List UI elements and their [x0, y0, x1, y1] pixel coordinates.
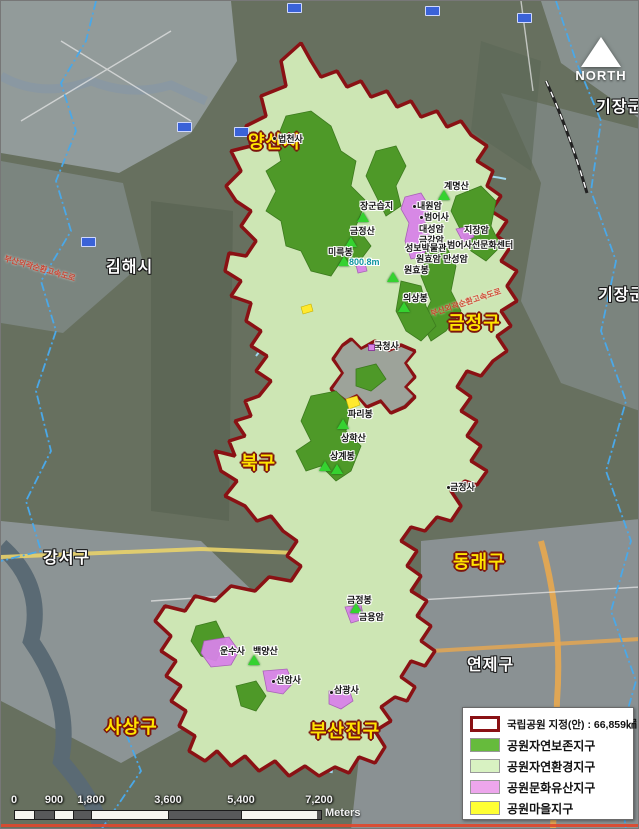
place-label-beomeosa-seon-culture-center: 범어사선문화센터: [447, 238, 513, 251]
environment-zone-swatch: [470, 759, 500, 773]
legend-boundary-label: 국립공원 지정(안) : 66,859㎢: [507, 717, 636, 732]
elevation-label: 800.8m: [349, 257, 380, 267]
basemap-canvas: [1, 1, 639, 829]
district-label-gijang-1: 기장군: [596, 93, 639, 117]
legend-row-boundary: 국립공원 지정(안) : 66,859㎢: [470, 714, 626, 734]
scale-bar: 0 900 1,800 3,600 5,400 7,200 Meters: [7, 793, 377, 825]
village-zone-swatch: [470, 801, 500, 815]
peak-triangle-icon: [398, 302, 410, 312]
place-label-seonamsa: 선암사: [276, 673, 301, 686]
scale-tick-900: 900: [45, 794, 63, 806]
north-label: NORTH: [573, 68, 629, 83]
temple-dot-icon: [272, 680, 275, 683]
scale-segment: [169, 811, 242, 819]
place-label-unsusa: 운수사: [220, 644, 245, 657]
temple-dot-icon: [447, 486, 450, 489]
district-label-busanjin: 부산진구: [310, 717, 380, 743]
district-label-bukgu: 북구: [241, 449, 276, 475]
place-label-wonhyobong: 원효봉: [404, 263, 429, 276]
scale-segment: [74, 811, 92, 819]
place-label-manseongam: 만성암: [443, 252, 468, 265]
district-label-yeonje: 연제구: [467, 651, 514, 675]
scale-tick-0: 0: [11, 794, 17, 806]
map-marker-box: [287, 3, 302, 13]
scale-tick-5400: 5,400: [227, 794, 255, 806]
place-label-sanghaksan: 상학산: [341, 431, 366, 444]
scale-unit-label: Meters: [325, 807, 360, 819]
scale-bar-segments: [14, 810, 322, 820]
legend-row-preservation: 공원자연보존지구: [470, 735, 626, 755]
map-marker-box: [425, 6, 440, 16]
map-marker-box: [177, 122, 192, 132]
map-marker-box: [234, 127, 249, 137]
park-designation-map: 양산시 김해시 기장군 기장군 금정구 북구 강서구 동래구 연제구 사상구 부…: [0, 0, 639, 829]
district-label-gangseo: 강서구: [43, 544, 90, 568]
district-label-geumjeong: 금정구: [448, 309, 501, 335]
place-label-samgwangsa: 삼광사: [334, 683, 359, 696]
scale-segment: [55, 811, 74, 819]
peak-triangle-icon: [337, 419, 349, 429]
scale-segment: [35, 811, 55, 819]
legend-row-village: 공원마을지구: [470, 798, 626, 818]
north-arrow-icon: [581, 37, 621, 67]
legend: 국립공원 지정(안) : 66,859㎢ 공원자연보존지구 공원자연환경지구 공…: [462, 707, 634, 820]
place-label-jijangam: 지장암: [464, 223, 489, 236]
map-marker-box: [81, 237, 96, 247]
temple-dot-icon: [330, 691, 333, 694]
legend-row-environment: 공원자연환경지구: [470, 756, 626, 776]
temple-dot-icon: [420, 216, 423, 219]
scale-segment: [92, 811, 169, 819]
place-label-gukcheongsa: 국청사: [374, 339, 399, 352]
peak-triangle-icon: [331, 464, 343, 474]
district-label-gijang-2: 기장군: [598, 281, 639, 305]
temple-dot-icon: [273, 137, 276, 140]
peak-triangle-icon: [248, 655, 260, 665]
district-label-dongnae: 동래구: [453, 548, 506, 574]
north-arrow: NORTH: [573, 37, 629, 83]
preservation-zone-swatch: [470, 738, 500, 752]
place-label-beopcheonsa: 법천사: [278, 132, 303, 145]
map-marker-box: [517, 13, 532, 23]
peak-triangle-icon: [387, 272, 399, 282]
legend-village-label: 공원마을지구: [507, 800, 573, 817]
place-label-geumjeongsan: 금정산: [350, 224, 375, 237]
bottom-frame-line: [1, 824, 639, 827]
place-label-janggun-wetland: 장군습지: [360, 199, 393, 212]
scale-tick-7200: 7,200: [305, 794, 333, 806]
peak-triangle-icon: [319, 461, 331, 471]
legend-preservation-label: 공원자연보존지구: [507, 737, 595, 754]
peak-triangle-icon: [357, 212, 369, 222]
heritage-dot-icon: [368, 344, 375, 351]
place-label-paribong: 파리봉: [348, 407, 373, 420]
place-label-sanggyebong: 상계봉: [330, 449, 355, 462]
scale-tick-3600: 3,600: [154, 794, 182, 806]
scale-segment: [242, 811, 317, 819]
legend-heritage-label: 공원문화유산지구: [507, 779, 595, 796]
legend-row-heritage: 공원문화유산지구: [470, 777, 626, 797]
legend-environment-label: 공원자연환경지구: [507, 758, 595, 775]
scale-tick-1800: 1,800: [77, 794, 105, 806]
scale-segment: [15, 811, 35, 819]
district-label-sasang: 사상구: [105, 713, 158, 739]
place-label-geumjeongsa: 금정사: [450, 480, 475, 493]
temple-dot-icon: [413, 205, 416, 208]
park-boundary-swatch: [470, 716, 500, 732]
heritage-zone-swatch: [470, 780, 500, 794]
district-label-gimhae: 김해시: [106, 253, 153, 277]
place-label-geumyongam: 금용암: [359, 610, 384, 623]
